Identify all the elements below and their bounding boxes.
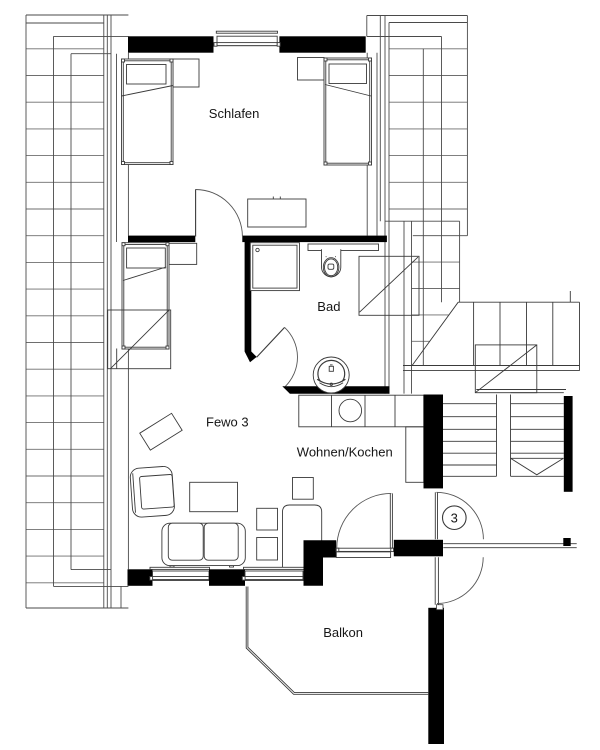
svg-text:Balkon: Balkon [323,625,363,640]
svg-text:Schlafen: Schlafen [209,106,260,121]
svg-text:Wohnen/Kochen: Wohnen/Kochen [297,445,393,460]
svg-text:Bad: Bad [317,299,340,314]
svg-text:Fewo 3: Fewo 3 [206,415,249,430]
svg-text:3: 3 [451,510,458,525]
